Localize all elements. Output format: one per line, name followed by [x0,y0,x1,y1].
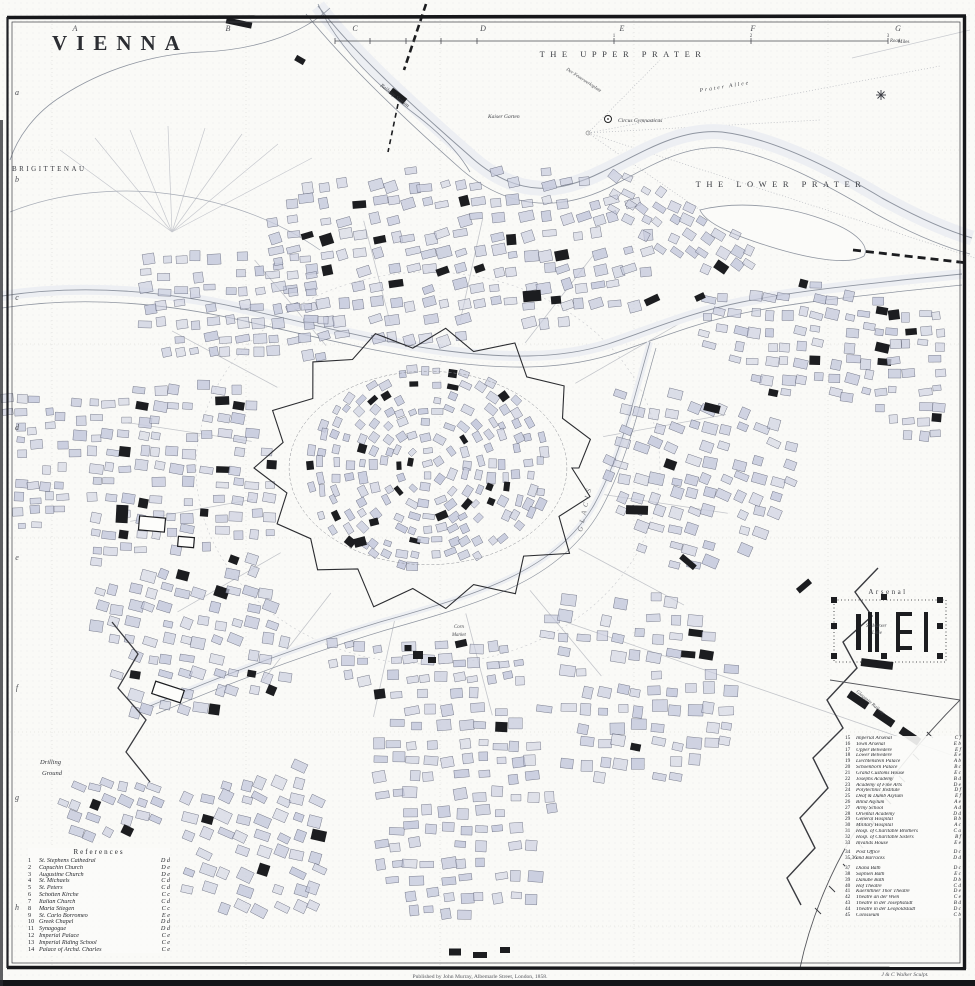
city-block [169,463,184,475]
legend-lname: St. Stephens Cathedral [39,858,152,865]
city-block [684,522,698,536]
city-block [734,325,750,336]
city-block [699,440,714,453]
city-block [269,335,279,343]
city-block [251,318,264,329]
building-block [176,569,190,581]
city-block [434,397,442,404]
city-block [386,876,399,883]
city-block [600,615,612,628]
city-block [159,700,171,710]
public-building [523,290,542,303]
city-block [440,908,451,920]
city-block [342,404,350,413]
city-block [487,675,497,685]
city-block [424,906,434,913]
city-block [864,369,874,380]
city-block [190,587,206,600]
city-block [590,227,602,239]
city-block [219,347,230,357]
city-block [54,482,63,489]
city-block [356,521,369,534]
city-block [471,499,480,508]
grid-letter-top: C [352,24,358,33]
city-block [497,495,509,508]
city-block [156,600,172,613]
city-block [387,670,398,680]
grid-letter-left: b [15,175,19,184]
city-block [247,492,258,503]
city-block [524,433,532,441]
city-block [652,202,666,214]
city-block [96,600,109,612]
city-block [620,263,637,275]
city-block [373,645,382,654]
city-block [651,216,662,227]
city-block [307,444,316,456]
city-block [591,281,605,290]
legend-lname: Palace of Archd. Charles [39,947,152,954]
city-block [499,404,510,416]
city-block [890,339,901,349]
city-block [286,245,301,254]
city-block [17,394,28,403]
city-block [357,658,367,664]
city-block [668,560,680,569]
city-block [684,474,699,486]
city-block [689,753,701,765]
city-block [56,494,69,501]
city-block [505,267,516,277]
scale-label-unit: Miles [898,40,909,45]
city-block [623,246,633,255]
city-block [225,568,240,580]
city-block [486,472,496,484]
city-block [395,409,405,418]
city-block [149,814,162,824]
city-blocks [1,166,946,920]
city-block [248,650,259,661]
city-block [433,456,444,467]
city-block [191,321,200,330]
city-block [316,472,324,484]
city-block [420,433,432,443]
legend-lref: D d [947,856,961,862]
city-block [102,827,114,838]
city-block [167,402,178,409]
city-block [381,549,392,559]
city-block [384,421,394,431]
city-block [390,691,402,698]
city-block [237,884,254,899]
legend-lname: St. Michaels [39,878,152,885]
city-block [682,228,696,242]
city-block [341,656,354,666]
city-block [411,551,420,559]
city-block [190,287,200,298]
city-block [506,194,520,206]
city-block [146,588,158,600]
city-block [375,858,385,870]
city-block [309,794,326,808]
city-block [42,466,50,475]
city-block [936,329,945,338]
city-block [181,885,194,895]
city-block [843,290,855,302]
city-block [18,523,25,529]
city-block [237,252,248,261]
city-block [306,900,319,912]
city-block [669,506,684,520]
city-block [514,520,525,531]
city-block [30,439,43,449]
city-block [386,741,401,748]
city-block [423,513,435,519]
building-block [663,458,677,471]
city-block [387,332,397,343]
city-block [747,327,761,339]
city-block [357,434,367,445]
city-block [455,248,467,257]
city-block [702,421,719,435]
city-block [424,756,438,766]
city-block [186,434,198,442]
city-block [527,471,534,479]
city-block [475,840,486,852]
city-block [783,459,797,471]
city-block [58,441,68,449]
railway-tick [829,886,835,892]
city-block [461,467,469,480]
city-block [699,472,711,485]
city-block [245,482,259,490]
city-block [453,228,468,237]
city-block [161,347,171,357]
city-block [742,258,755,270]
city-block [204,284,215,290]
city-block [491,243,506,256]
public-building [500,947,510,953]
arsenal-pavilion [881,653,887,659]
city-block [665,409,679,420]
city-block [730,258,744,272]
city-block [106,449,119,457]
city-block [577,723,589,734]
city-block [209,653,225,665]
city-block [782,375,796,386]
city-block [369,212,381,225]
grid-letter-left: e [15,553,19,562]
linienwall-west [112,622,150,782]
legend-row: 11SynagogueD d [28,926,170,933]
city-block [753,505,765,516]
city-block [597,686,611,698]
city-block [229,512,243,522]
city-block [329,429,339,439]
city-block [396,549,409,558]
city-block [372,247,384,259]
city-block [770,491,782,502]
city-block [455,180,466,191]
city-block [103,547,117,556]
building-block [474,263,486,273]
city-block [703,313,712,320]
city-block [319,182,330,192]
city-block [181,811,198,824]
city-block [632,706,643,719]
city-block [137,798,148,808]
city-block [559,665,576,677]
public-building [796,579,812,594]
city-block [539,446,549,458]
legend-lname: Imperial Riding School [39,940,152,947]
city-block [289,867,306,880]
legend-lname: Maria Stiegen [39,906,152,913]
city-block [411,722,421,730]
city-block [671,615,681,625]
building-block [120,824,134,837]
landmark-star-icon [876,90,886,100]
arsenal-wing [900,646,912,650]
city-block [438,806,451,818]
city-block [592,248,608,261]
city-block [140,268,151,275]
city-block [646,651,662,663]
city-block [268,245,284,255]
city-block [384,407,395,417]
city-block [336,249,348,261]
city-block [167,528,177,536]
city-block [308,851,322,865]
city-block [588,297,603,310]
city-block [424,313,439,324]
city-block [196,848,212,861]
city-block [258,588,273,599]
city-block [397,560,407,570]
city-block [184,499,193,506]
city-block [512,757,526,768]
city-block [590,200,601,210]
building-block [931,413,941,422]
city-block [202,542,210,551]
label-arsenal: Arsenal [868,588,907,596]
city-block [135,783,146,792]
city-block [702,701,715,714]
city-block [668,233,680,244]
grid-letter-left: g [15,793,19,802]
city-block [829,374,840,383]
city-block [180,513,193,524]
city-block [509,718,523,729]
city-block [163,256,171,263]
city-block [887,356,901,365]
city-block [251,791,267,804]
city-block [307,815,322,829]
building-block [319,232,334,246]
building-block [380,390,391,401]
city-block [15,479,28,488]
city-block [254,813,272,828]
city-block [27,427,37,435]
city-block [315,352,326,361]
city-block [409,876,424,886]
city-block [631,758,644,769]
city-block [510,822,524,833]
city-block [784,476,797,487]
city-block [651,593,661,601]
city-block [724,664,739,673]
city-block [889,414,898,423]
city-block [446,446,456,457]
city-block [861,387,871,395]
city-block [729,355,741,364]
city-block [606,279,619,288]
city-block [369,445,379,456]
city-block [422,264,437,274]
building-block [129,670,140,680]
city-block [863,322,875,331]
city-block [667,388,683,400]
city-block [491,232,505,242]
city-block [120,543,132,551]
building-block [455,639,468,648]
city-block [724,685,739,697]
building-block [506,234,516,246]
city-block [537,488,545,496]
city-block [577,634,591,642]
city-block [766,437,781,449]
north-railway [388,104,398,152]
city-block [666,648,682,658]
city-block [395,523,408,534]
city-block [405,246,421,256]
city-block [93,547,102,554]
city-block [232,830,247,844]
city-block [715,488,731,502]
city-block [163,620,173,628]
city-block [518,210,534,223]
city-block [201,430,212,438]
building-block [394,485,404,496]
city-block [45,422,55,429]
city-block [453,787,468,800]
city-block [648,522,664,533]
city-block [490,198,501,207]
city-block [829,387,843,397]
city-block [511,395,522,406]
building-block [257,863,271,877]
city-block [631,492,645,504]
city-block [234,531,243,540]
city-block [557,609,573,623]
city-block [287,271,298,280]
building-block [503,481,510,491]
city-block [339,227,353,239]
city-block [460,738,471,749]
city-block [555,264,570,275]
city-block [825,296,838,305]
city-block [641,186,651,195]
city-block [334,457,340,467]
city-block [902,339,910,348]
city-block [224,684,238,696]
city-block [635,628,645,637]
city-block [236,815,251,826]
city-block [646,614,660,622]
city-block [269,232,283,245]
city-block [255,287,265,295]
arsenal-wing [900,612,912,616]
scale-label-1: 1 [613,34,616,39]
city-block [407,263,421,273]
city-block [444,404,455,413]
city-block [679,213,695,227]
city-block [417,689,427,698]
city-block [55,412,65,421]
public-building [428,657,436,663]
city-block [167,384,179,395]
city-block [408,527,417,536]
building-block [352,200,366,209]
city-block [930,430,941,437]
city-block [90,512,102,524]
public-building [413,651,423,659]
city-block [814,372,823,381]
city-block [433,382,442,388]
grid-letter-top: E [619,24,625,33]
arsenal-pavilion [937,623,943,629]
building-block [89,799,101,811]
city-block [447,523,459,533]
city-block [631,719,646,730]
city-block [739,526,750,536]
city-block [400,197,415,211]
building-block [374,688,386,699]
city-block [484,443,493,453]
city-block [706,722,719,733]
building-block [310,829,327,843]
city-block [917,339,928,346]
building-block [876,306,889,316]
city-block [703,681,715,693]
city-block [613,597,628,610]
city-block [470,703,484,713]
city-block [17,437,25,443]
city-block [15,408,27,416]
label-prater-allee: Prater Allee [698,80,750,94]
city-block [461,404,475,416]
city-block [470,283,485,294]
legend-row: 5St. PetersC d [28,885,170,892]
building-block [357,443,368,454]
city-block [459,873,472,881]
city-block [316,297,331,309]
city-block [138,281,153,294]
legend-lname: Augustine Church [39,872,152,879]
city-block [902,417,914,425]
city-block [885,328,897,336]
city-block [86,812,101,823]
city-block [407,365,418,374]
city-block [407,676,419,684]
city-block [381,494,391,505]
city-block [249,685,260,695]
grid-letter-left: h [15,903,19,912]
city-block [87,492,97,501]
city-block [374,756,388,763]
park-alley [172,128,205,232]
city-block [795,375,806,385]
